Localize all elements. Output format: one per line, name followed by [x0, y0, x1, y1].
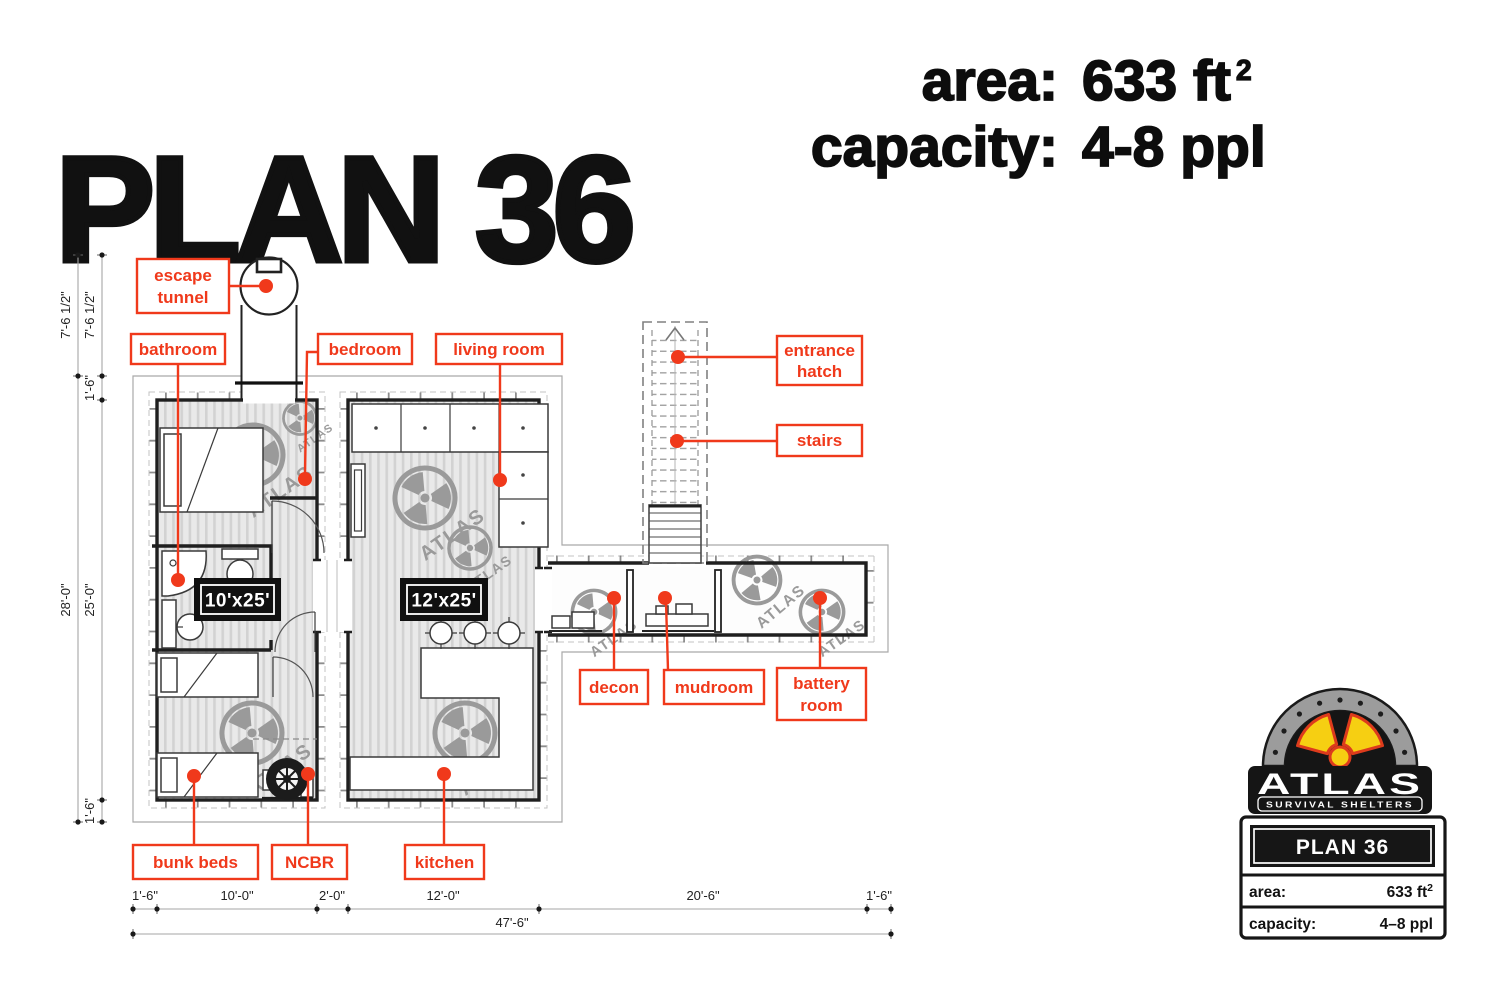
svg-text:7'-6 1/2": 7'-6 1/2" [82, 291, 97, 339]
capacity-label: capacity: [790, 114, 1058, 180]
svg-text:47'-6": 47'-6" [495, 915, 529, 930]
tv-console [351, 464, 365, 537]
bunk-bed-upper [157, 653, 258, 697]
page: PLAN 36 area: 633 ft2 capacity: 4-8 ppl … [0, 0, 1500, 1000]
svg-text:bathroom: bathroom [139, 340, 217, 359]
size-tag-left: 10'x25' [194, 578, 281, 621]
area-value: 633 ft2 [1082, 48, 1271, 114]
svg-text:7'-6 1/2": 7'-6 1/2" [58, 291, 73, 339]
atlas-logo: ATLAS SURVIVAL SHELTERS [1248, 689, 1432, 814]
logo-spec-card: PLAN 36 area: 633 ft2 capacity: 4–8 ppl [1241, 817, 1445, 938]
svg-text:kitchen: kitchen [415, 853, 475, 872]
bathroom-counter [162, 600, 176, 648]
svg-text:NCBR: NCBR [285, 853, 334, 872]
svg-text:20'-6": 20'-6" [686, 888, 720, 903]
dimensions-left: 7'-6 1/2" 7'-6 1/2" 1'-6" 28'-0" 25'-0" … [58, 252, 107, 824]
size-tag-right: 12'x25' [400, 578, 488, 621]
svg-text:10'x25': 10'x25' [205, 591, 270, 612]
toilet-tank [222, 549, 258, 559]
svg-text:escape: escape [154, 266, 212, 285]
capacity-value: 4-8 ppl [1082, 114, 1271, 180]
svg-text:1'-6": 1'-6" [82, 375, 97, 401]
svg-text:room: room [800, 696, 843, 715]
svg-text:bunk beds: bunk beds [153, 853, 238, 872]
svg-text:mudroom: mudroom [675, 678, 753, 697]
card-area-label: area: [1249, 884, 1286, 901]
svg-text:1'-6": 1'-6" [132, 888, 158, 903]
svg-text:2'-0": 2'-0" [319, 888, 345, 903]
label-entrance-hatch: entrance hatch [671, 336, 862, 385]
svg-text:hatch: hatch [797, 362, 842, 381]
card-capacity-value: 4–8 ppl [1380, 916, 1433, 933]
brand-tagline: SURVIVAL SHELTERS [1266, 800, 1414, 810]
floor-plan: ATLAS [55, 240, 915, 960]
atlas-logo-block: ATLAS SURVIVAL SHELTERS PLAN 36 area: 63… [1234, 670, 1450, 958]
svg-text:living room: living room [453, 340, 545, 359]
area-superscript: 2 [1236, 55, 1252, 87]
card-capacity-label: capacity: [1249, 916, 1316, 933]
svg-text:28'-0": 28'-0" [58, 583, 73, 617]
svg-text:1'-6": 1'-6" [866, 888, 892, 903]
specs-block: area: 633 ft2 capacity: 4-8 ppl [790, 48, 1271, 180]
svg-text:12'x25': 12'x25' [411, 591, 476, 612]
svg-text:12'-0": 12'-0" [426, 888, 460, 903]
brand-wordmark: ATLAS [1257, 768, 1423, 801]
bunk-bed-lower [157, 753, 258, 797]
svg-text:entrance: entrance [784, 341, 855, 360]
svg-text:tunnel: tunnel [158, 288, 209, 307]
svg-text:decon: decon [589, 678, 639, 697]
svg-text:1'-6": 1'-6" [82, 798, 97, 824]
card-plan-name: PLAN 36 [1296, 836, 1389, 859]
area-label: area: [790, 48, 1058, 114]
svg-text:bedroom: bedroom [329, 340, 402, 359]
svg-text:stairs: stairs [797, 431, 842, 450]
card-area-value: 633 ft2 [1387, 882, 1434, 901]
bed-double [160, 428, 263, 512]
svg-text:battery: battery [793, 674, 850, 693]
svg-text:25'-0": 25'-0" [82, 583, 97, 617]
bar-stools [425, 617, 525, 649]
escape-tunnel [241, 258, 298, 401]
label-stairs: stairs [670, 425, 862, 456]
svg-text:10'-0": 10'-0" [220, 888, 254, 903]
dimensions-bottom: 1'-6" 10'-0" 2'-0" 12'-0" 20'-6" 1'-6" 4… [130, 888, 893, 939]
